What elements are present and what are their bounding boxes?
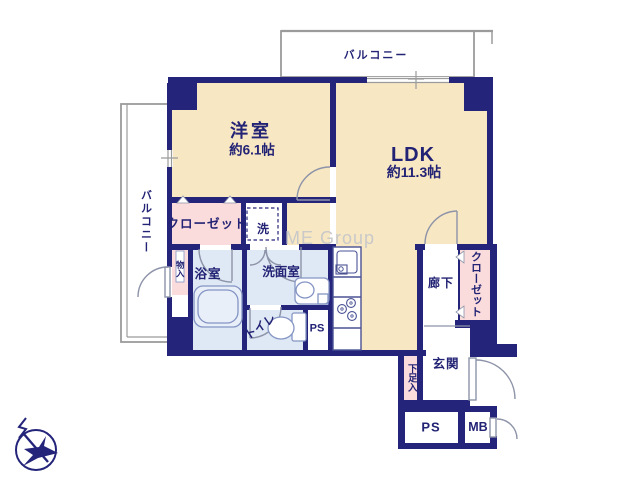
ldk-label: LDK — [391, 145, 435, 165]
shoe-cabinet-label: 下足入 — [406, 364, 416, 393]
western-room-size: 約6.1帖 — [229, 143, 275, 157]
washroom-label: 洗面室 — [262, 266, 300, 279]
entrance-label: 玄関 — [432, 358, 459, 371]
compass-north-icon — [16, 418, 58, 470]
closet-hallway-label: クローゼット — [470, 251, 481, 317]
storage-label: 物入 — [176, 261, 185, 278]
pipe-space-bottom-label: PS — [421, 421, 440, 434]
western-room-label: 洋室 — [230, 122, 272, 140]
floorplan-page: 洋室 約6.1帖 LDK 約11.3帖 バルコニー バルコニー クローゼット 洗… — [0, 0, 640, 480]
bathtub-icon — [194, 286, 242, 327]
closet-bedroom-label: クローゼット — [166, 218, 247, 231]
balcony-left-label: バルコニー — [140, 190, 151, 255]
pipe-space-mid-label: PS — [310, 324, 325, 335]
hallway-label: 廊下 — [428, 277, 454, 289]
balcony-top-label: バルコニー — [344, 51, 409, 62]
laundry-label: 洗 — [257, 223, 269, 235]
washbasin-icon — [295, 278, 329, 304]
watermark-text: ME Group — [285, 229, 375, 247]
ldk-size: 約11.3帖 — [387, 165, 441, 179]
bathroom-label: 浴室 — [194, 268, 221, 281]
meter-box-label: MB — [468, 421, 487, 434]
kitchen-counter-icon — [333, 247, 361, 350]
